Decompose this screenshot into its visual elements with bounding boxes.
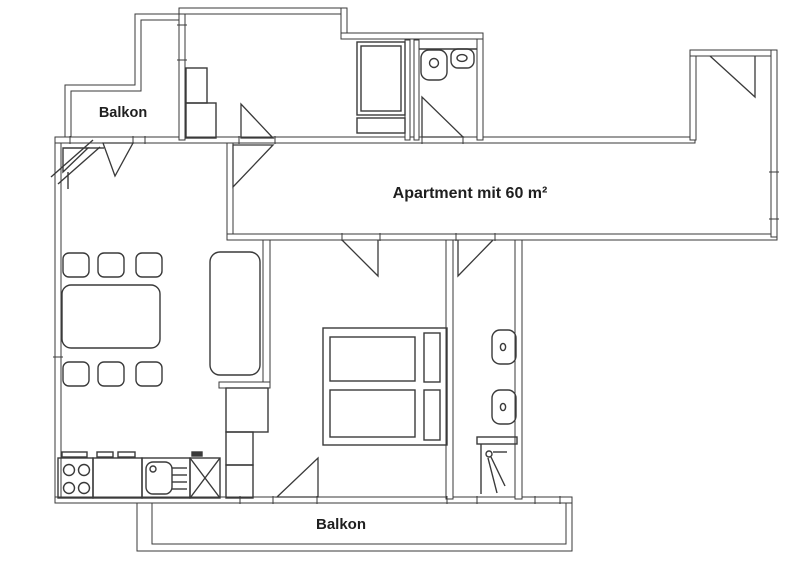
washbasin-icon: [421, 50, 447, 80]
wall-top-upper: [179, 8, 347, 14]
toilet-icon: [451, 49, 474, 68]
kitchen-fixtures: [58, 388, 268, 498]
chair: [98, 362, 124, 386]
balcony-top-label: Balkon: [99, 105, 147, 121]
top-bath-door-swing: [422, 97, 463, 137]
wall-upperleft-vertical: [179, 8, 185, 140]
double-bed-icon: [323, 328, 447, 445]
wall-top-upper-right: [341, 33, 483, 39]
bedroom-door-swing: [342, 240, 378, 276]
balcony-bottom-label: Balkon: [316, 516, 366, 533]
wall-topbath-left-a: [405, 40, 410, 140]
floor-plan-drawing: Balkon Apartment mit 60 m² Balkon: [0, 0, 800, 571]
wall-bath-right: [515, 240, 522, 499]
upper-room-door-swing: [241, 104, 273, 138]
wardrobe-icon: [357, 42, 405, 133]
chair: [63, 362, 89, 386]
toilet-icon: [492, 390, 516, 424]
labels: Balkon Apartment mit 60 m² Balkon: [99, 105, 548, 533]
bathroom-bottom-fixtures: [477, 330, 517, 494]
wall-entry-left: [690, 50, 696, 140]
chair: [63, 253, 89, 277]
bedroom-balcony-door-swing: [277, 458, 318, 497]
shelf-steps: [186, 68, 216, 138]
chair: [98, 253, 124, 277]
dining-table: [62, 285, 160, 348]
wall-entry-top: [690, 50, 777, 56]
pillow: [424, 390, 440, 440]
shower-icon: [477, 437, 517, 494]
entrance-door-swing: [710, 56, 755, 97]
wall-top-main: [55, 137, 695, 143]
bath-door-swing: [458, 240, 493, 276]
chairs: [63, 253, 162, 386]
refrigerator-icon: [190, 452, 220, 498]
wall-topbath-left-b: [414, 40, 419, 140]
apartment-title: Apartment mit 60 m²: [393, 185, 548, 202]
wall-topbath-right: [477, 39, 483, 140]
mattress: [330, 337, 415, 381]
wall-hall-vertical: [227, 143, 233, 240]
door-swings: [103, 56, 755, 497]
living-balcony-door-swing: [103, 143, 133, 176]
wall-corridor-bottom: [227, 234, 777, 240]
chair: [136, 253, 162, 277]
hall-door-swing: [233, 145, 273, 187]
counter-knobs: [62, 452, 135, 457]
wall-left: [55, 137, 61, 503]
chair: [136, 362, 162, 386]
bedroom-fixtures: [323, 328, 447, 445]
kitchen-cabinets: [226, 388, 268, 498]
kitchen-counter: [93, 458, 142, 498]
pillow: [424, 333, 440, 382]
wall-right: [771, 50, 777, 237]
washbasin-icon: [492, 330, 516, 364]
walls: [55, 8, 777, 503]
bathroom-top-fixtures: [419, 49, 477, 80]
wall-divider-jog: [219, 382, 270, 388]
sofa: [210, 252, 260, 375]
mattress: [330, 390, 415, 437]
wall-living-bedroom-divider: [263, 240, 270, 384]
upper-room-fixtures: [186, 42, 405, 138]
floor-plan: Balkon Apartment mit 60 m² Balkon: [0, 0, 800, 571]
kitchen-sink-icon: [142, 458, 190, 498]
stove-icon: [58, 458, 93, 498]
